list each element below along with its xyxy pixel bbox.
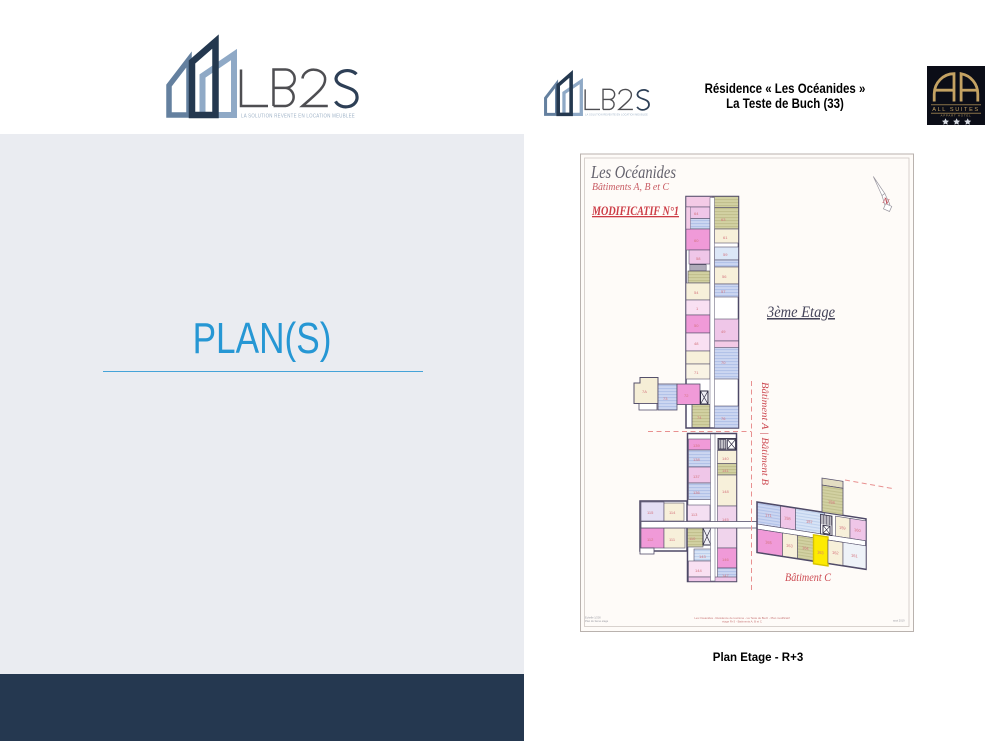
svg-text:111: 111 <box>669 537 676 542</box>
svg-text:138: 138 <box>693 457 700 462</box>
svg-text:147: 147 <box>722 573 729 578</box>
svg-text:71: 71 <box>694 370 699 375</box>
svg-text:59: 59 <box>723 252 728 257</box>
svg-text:48: 48 <box>694 341 699 346</box>
svg-text:115: 115 <box>647 510 654 515</box>
svg-text:73: 73 <box>663 396 668 401</box>
svg-text:141: 141 <box>722 468 729 473</box>
svg-text:aout 2019: aout 2019 <box>893 619 905 623</box>
svg-text:145: 145 <box>722 517 729 522</box>
svg-text:Bâtiment C: Bâtiment C <box>785 572 831 584</box>
svg-text:Plan du 3eme etage: Plan du 3eme etage <box>585 619 609 623</box>
svg-text:54: 54 <box>694 290 699 295</box>
svg-text:49: 49 <box>721 329 726 334</box>
svg-text:113: 113 <box>691 512 698 517</box>
svg-text:148: 148 <box>722 489 729 494</box>
svg-text:144: 144 <box>695 568 702 573</box>
svg-text:Les Océanides: Les Océanides <box>590 162 676 182</box>
svg-text:140: 140 <box>722 456 729 461</box>
svg-text:ALL SUITES: ALL SUITES <box>932 107 980 113</box>
svg-text:61: 61 <box>723 235 728 240</box>
svg-text:Bâtiment A | Bâtiment B: Bâtiment A | Bâtiment B <box>759 382 769 485</box>
svg-text:64: 64 <box>694 211 699 216</box>
svg-text:APPART HOTEL: APPART HOTEL <box>941 113 972 117</box>
svg-text:58: 58 <box>696 256 701 261</box>
svg-text:etage R+3 - Batiments A, B et: etage R+3 - Batiments A, B et C <box>722 620 762 624</box>
svg-text:Echelle 1/200: Echelle 1/200 <box>585 616 601 620</box>
svg-text:114: 114 <box>669 510 676 515</box>
svg-text:72: 72 <box>684 393 689 398</box>
svg-text:136: 136 <box>693 490 700 495</box>
svg-text:63: 63 <box>721 217 726 222</box>
svg-text:143: 143 <box>699 554 706 559</box>
svg-text:139: 139 <box>693 443 700 448</box>
svg-text:7A: 7A <box>642 389 647 394</box>
svg-text:60: 60 <box>694 238 699 243</box>
svg-text:MODIFICATIF N°1: MODIFICATIF N°1 <box>591 203 679 218</box>
svg-text:3ème Etage: 3ème Etage <box>766 304 835 321</box>
svg-text:74: 74 <box>697 415 702 420</box>
svg-text:56: 56 <box>722 274 727 279</box>
svg-text:70: 70 <box>721 360 726 365</box>
svg-text:57: 57 <box>721 289 726 294</box>
svg-text:Bâtiments A, B et C: Bâtiments A, B et C <box>592 181 670 193</box>
svg-text:50: 50 <box>694 323 699 328</box>
svg-text:137: 137 <box>693 474 700 479</box>
svg-text:146: 146 <box>722 557 729 562</box>
svg-text:110: 110 <box>689 536 696 541</box>
svg-text:76: 76 <box>721 416 726 421</box>
svg-text:112: 112 <box>647 537 654 542</box>
